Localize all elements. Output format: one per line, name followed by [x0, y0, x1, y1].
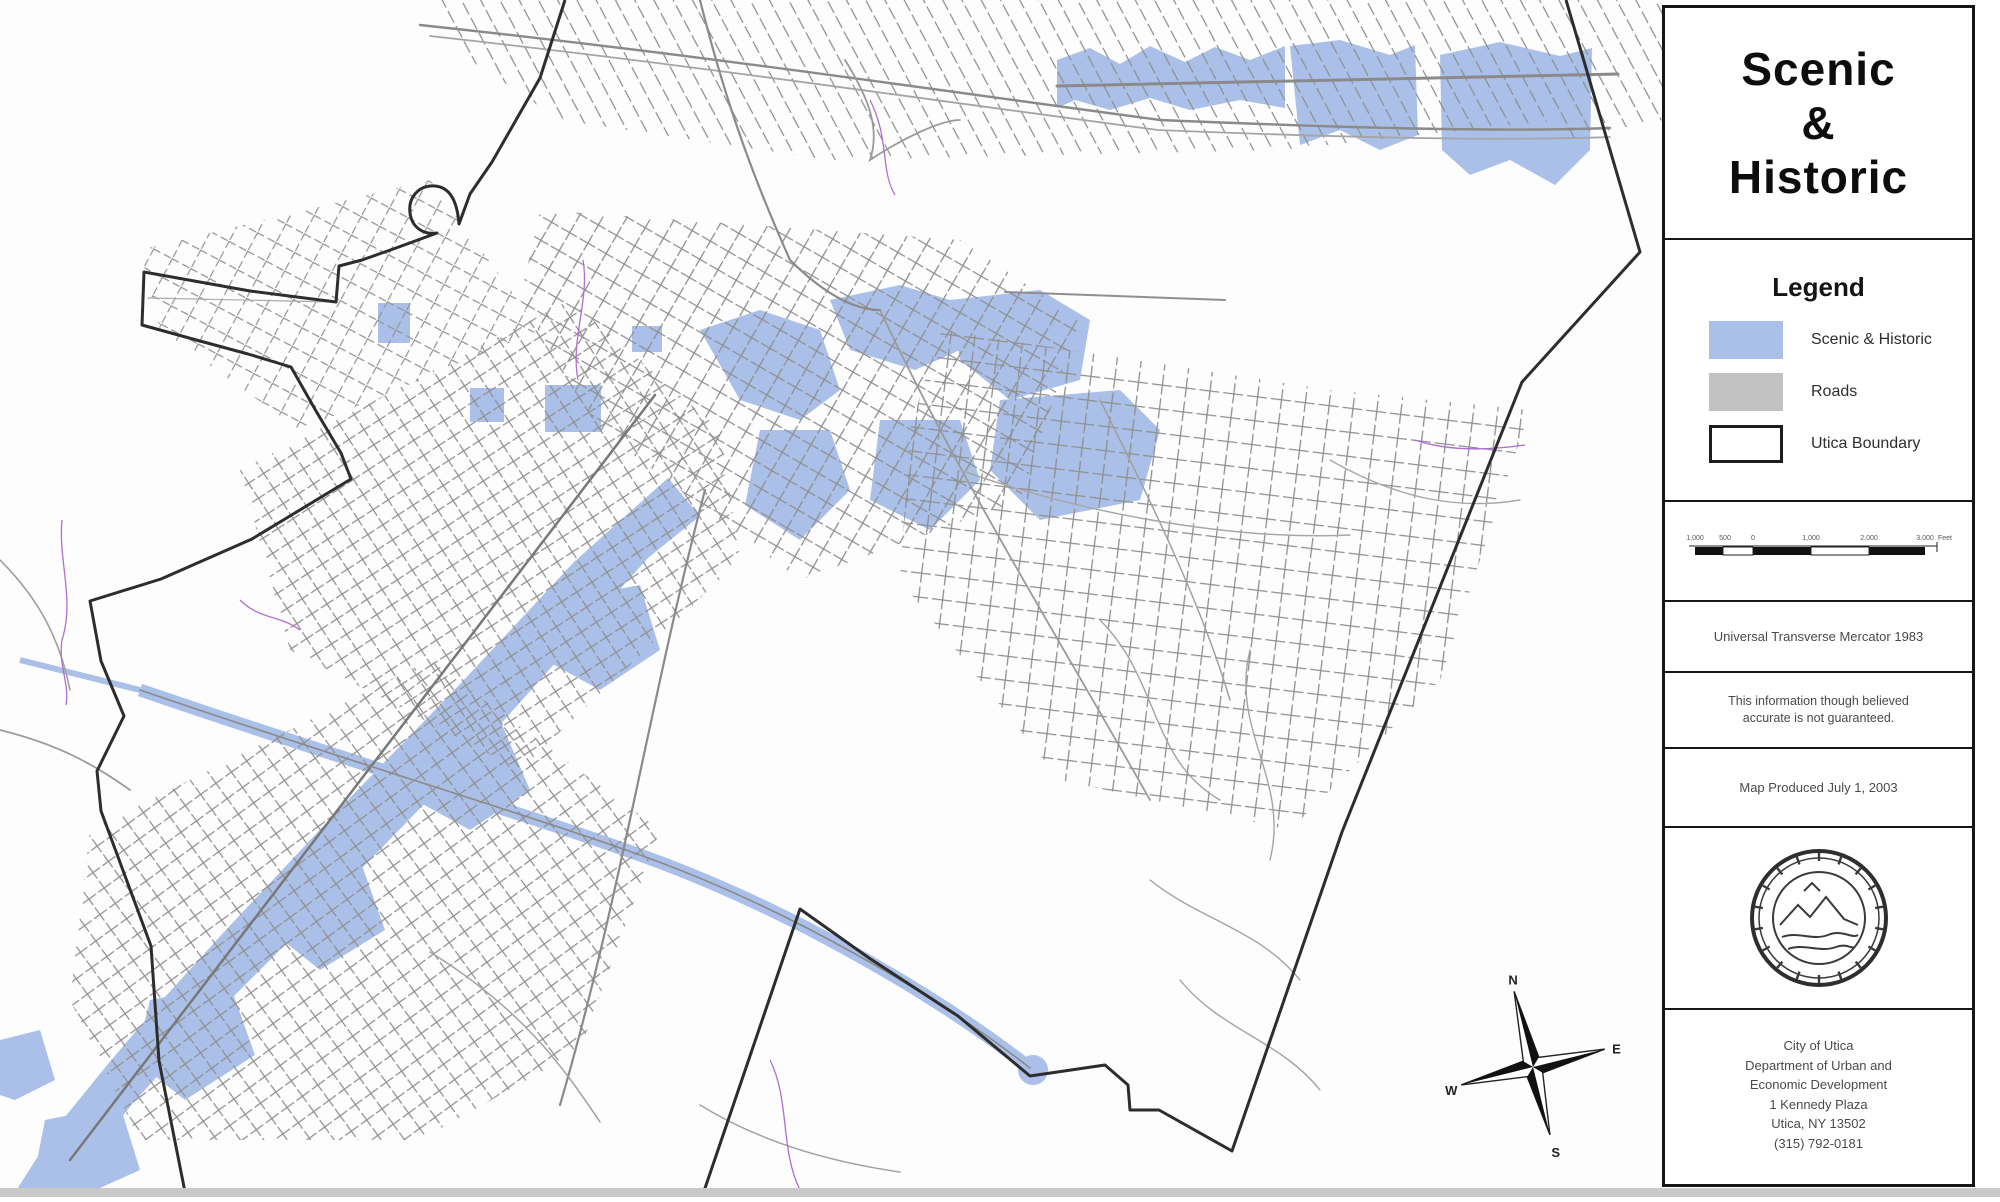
map-canvas: N E W S — [0, 0, 1663, 1197]
svg-text:1,000: 1,000 — [1802, 535, 1820, 542]
compass-n-label: N — [1508, 973, 1517, 988]
address-line: Utica, NY 13502 — [1665, 1114, 1972, 1134]
compass-rose-icon: N E W S — [1419, 950, 1645, 1184]
legend-item-label: Utica Boundary — [1811, 435, 1920, 453]
legend-heading: Legend — [1665, 272, 1972, 303]
legend-item-utica-boundary: Utica Boundary — [1709, 425, 1972, 463]
map-info-panel: Scenic & Historic Legend Scenic & Histor… — [1662, 5, 1975, 1187]
map-sheet: { "sidebar": { "title_lines": ["Scenic",… — [0, 0, 2000, 1197]
roads-swatch — [1709, 373, 1783, 411]
compass-w-label: W — [1445, 1083, 1458, 1098]
utica-boundary-swatch — [1709, 425, 1783, 463]
legend-item-label: Roads — [1811, 383, 1857, 401]
projection-note: Universal Transverse Mercator 1983 — [1665, 602, 1972, 673]
map-title: Scenic & Historic — [1665, 8, 1972, 240]
projection-text: Universal Transverse Mercator 1983 — [1714, 629, 1924, 644]
svg-text:0: 0 — [1751, 535, 1755, 542]
street-grid — [70, 0, 1663, 1140]
address-line: Economic Development — [1665, 1075, 1972, 1095]
utica-city-map: N E W S — [0, 0, 1663, 1197]
svg-text:3,000: 3,000 — [1916, 535, 1934, 542]
scale-bar-labels: 1,000 500 0 1,000 2,000 3,000 Feet — [1686, 535, 1952, 542]
scale-unit-label: Feet — [1937, 535, 1951, 542]
title-line-3: Historic — [1729, 150, 1908, 204]
legend-item-roads: Roads — [1709, 373, 1972, 411]
scale-bar: 1,000 500 0 1,000 2,000 3,000 Feet — [1665, 502, 1972, 602]
svg-text:500: 500 — [1719, 535, 1731, 542]
produced-text: Map Produced July 1, 2003 — [1739, 780, 1897, 795]
disclaimer-text: This information though believed accurat… — [1704, 693, 1934, 728]
address-line: City of Utica — [1665, 1036, 1972, 1056]
scenic-historic-swatch — [1709, 321, 1783, 359]
address-line: 1 Kennedy Plaza — [1665, 1095, 1972, 1115]
title-line-1: Scenic — [1741, 42, 1895, 96]
department-address: City of Utica Department of Urban and Ec… — [1665, 1010, 1972, 1184]
scale-bar-graphic: 1,000 500 0 1,000 2,000 3,000 Feet — [1685, 528, 1953, 574]
svg-text:2,000: 2,000 — [1860, 535, 1878, 542]
address-line: Department of Urban and — [1665, 1056, 1972, 1076]
svg-text:1,000: 1,000 — [1686, 535, 1704, 542]
legend: Legend Scenic & Historic Roads Utica Bou… — [1665, 240, 1972, 502]
city-seal-section — [1665, 828, 1972, 1010]
produced-note: Map Produced July 1, 2003 — [1665, 749, 1972, 828]
legend-item-scenic-historic: Scenic & Historic — [1709, 321, 1972, 359]
city-of-utica-seal-icon — [1748, 847, 1890, 989]
compass-s-label: S — [1551, 1145, 1560, 1160]
disclaimer-note: This information though believed accurat… — [1665, 673, 1972, 749]
title-line-2: & — [1801, 96, 1835, 150]
compass-e-label: E — [1612, 1041, 1621, 1056]
address-line: (315) 792-0181 — [1665, 1134, 1972, 1154]
legend-item-label: Scenic & Historic — [1811, 331, 1932, 349]
sheet-bottom-border — [0, 1188, 2000, 1197]
